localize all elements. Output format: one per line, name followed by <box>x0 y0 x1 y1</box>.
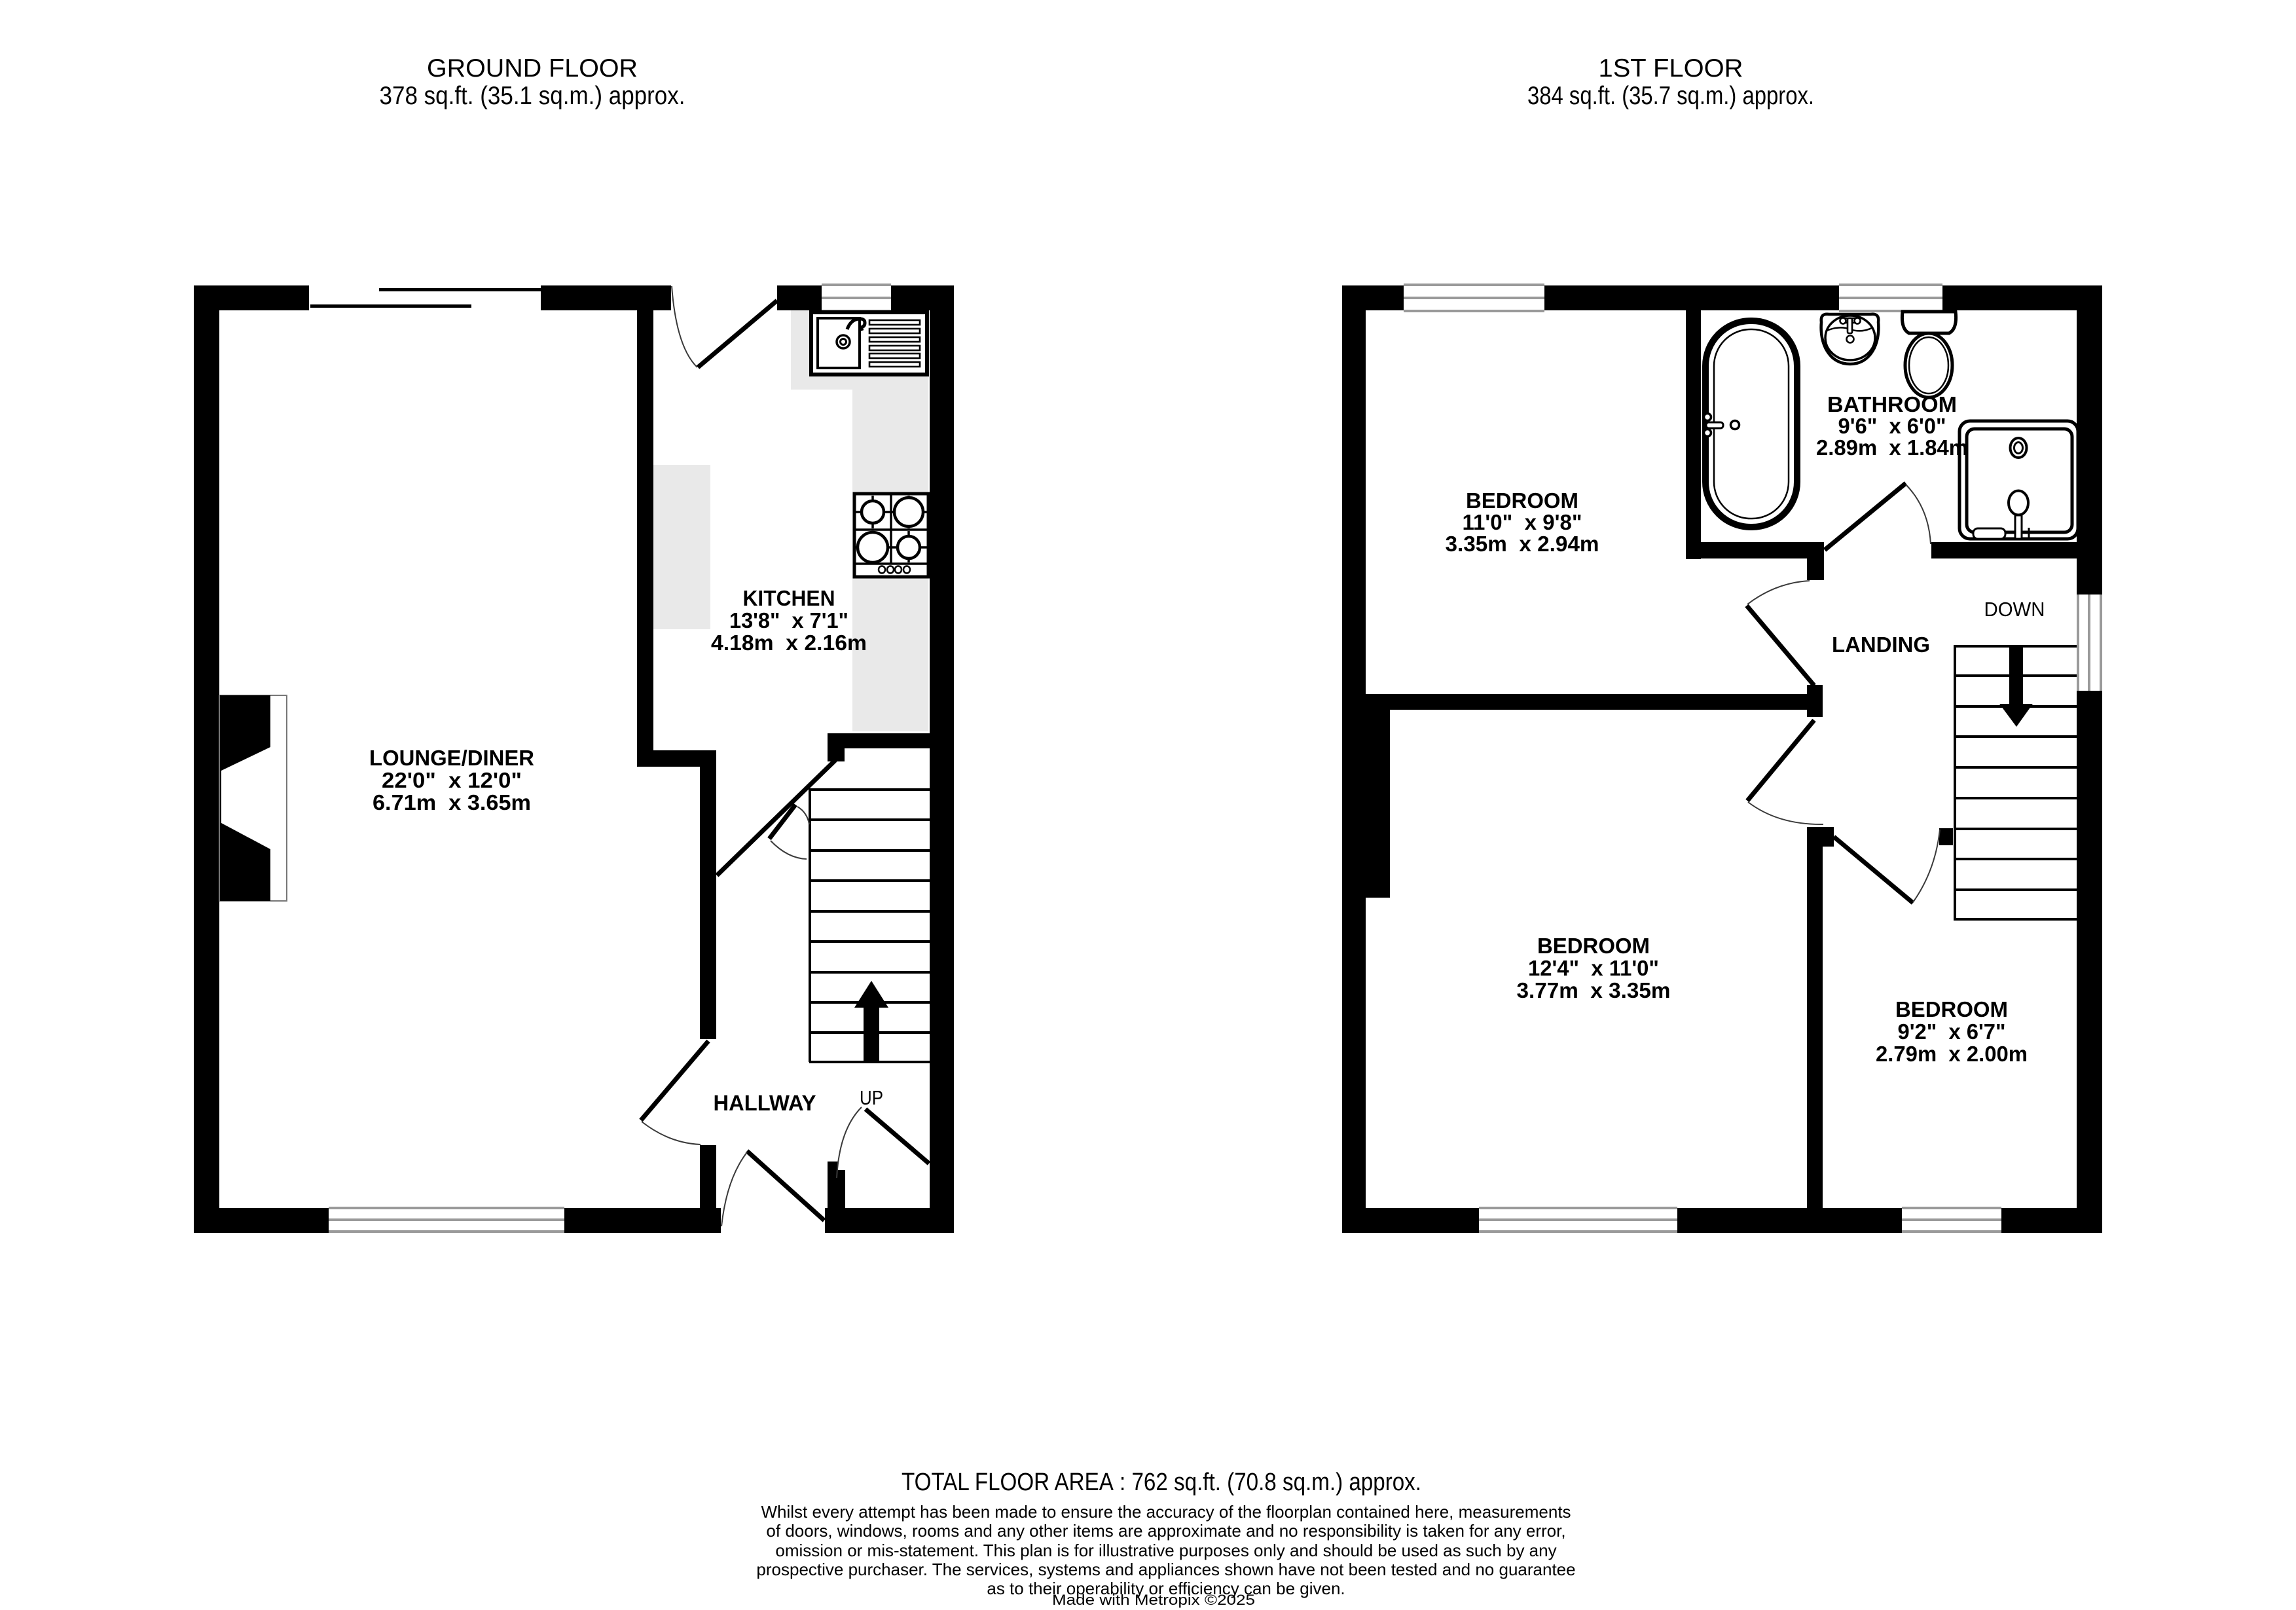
svg-text:omission or mis-statement. Thi: omission or mis-statement. This plan is … <box>775 1541 1556 1560</box>
svg-text:Made with Metropix ©2025: Made with Metropix ©2025 <box>1052 1592 1255 1608</box>
svg-text:HALLWAY: HALLWAY <box>714 1091 816 1115</box>
svg-text:2.79m x 2.00m: 2.79m x 2.00m <box>1876 1042 2028 1066</box>
svg-text:9'2" x 6'7": 9'2" x 6'7" <box>1898 1019 2006 1044</box>
svg-text:2.89m x 1.84m: 2.89m x 1.84m <box>1816 435 1968 460</box>
svg-text:1ST FLOOR: 1ST FLOOR <box>1599 54 1743 82</box>
svg-text:13'8" x 7'1": 13'8" x 7'1" <box>729 608 848 632</box>
svg-text:LANDING: LANDING <box>1832 632 1930 657</box>
svg-text:12'4" x 11'0": 12'4" x 11'0" <box>1528 956 1659 980</box>
svg-text:378 sq.ft. (35.1 sq.m.) approx: 378 sq.ft. (35.1 sq.m.) approx. <box>380 82 685 110</box>
svg-text:BATHROOM: BATHROOM <box>1827 392 1957 416</box>
svg-text:6.71m x 3.65m: 6.71m x 3.65m <box>373 790 531 814</box>
svg-text:3.77m x 3.35m: 3.77m x 3.35m <box>1517 978 1671 1002</box>
svg-text:22'0" x 12'0": 22'0" x 12'0" <box>382 768 522 792</box>
svg-text:3.35m x 2.94m: 3.35m x 2.94m <box>1446 532 1599 556</box>
svg-text:Whilst every attempt has been: Whilst every attempt has been made to en… <box>761 1502 1571 1522</box>
svg-text:GROUND FLOOR: GROUND FLOOR <box>427 54 638 82</box>
svg-text:of doors, windows, rooms and a: of doors, windows, rooms and any other i… <box>766 1521 1565 1541</box>
svg-text:LOUNGE/DINER: LOUNGE/DINER <box>369 746 534 770</box>
svg-text:4.18m x 2.16m: 4.18m x 2.16m <box>711 631 867 655</box>
svg-text:TOTAL FLOOR AREA : 762 sq.ft.: TOTAL FLOOR AREA : 762 sq.ft. (70.8 sq.m… <box>902 1469 1421 1496</box>
svg-text:BEDROOM: BEDROOM <box>1466 488 1578 513</box>
svg-text:KITCHEN: KITCHEN <box>743 586 835 610</box>
svg-text:384 sq.ft. (35.7 sq.m.) approx: 384 sq.ft. (35.7 sq.m.) approx. <box>1527 82 1814 110</box>
svg-text:prospective purchaser. The ser: prospective purchaser. The services, sys… <box>756 1560 1575 1579</box>
svg-text:BEDROOM: BEDROOM <box>1895 997 2008 1021</box>
svg-text:11'0" x 9'8": 11'0" x 9'8" <box>1463 510 1582 534</box>
svg-text:BEDROOM: BEDROOM <box>1537 934 1650 958</box>
svg-text:UP: UP <box>860 1086 883 1109</box>
svg-text:DOWN: DOWN <box>1984 598 2045 621</box>
svg-text:9'6" x 6'0": 9'6" x 6'0" <box>1838 414 1946 438</box>
